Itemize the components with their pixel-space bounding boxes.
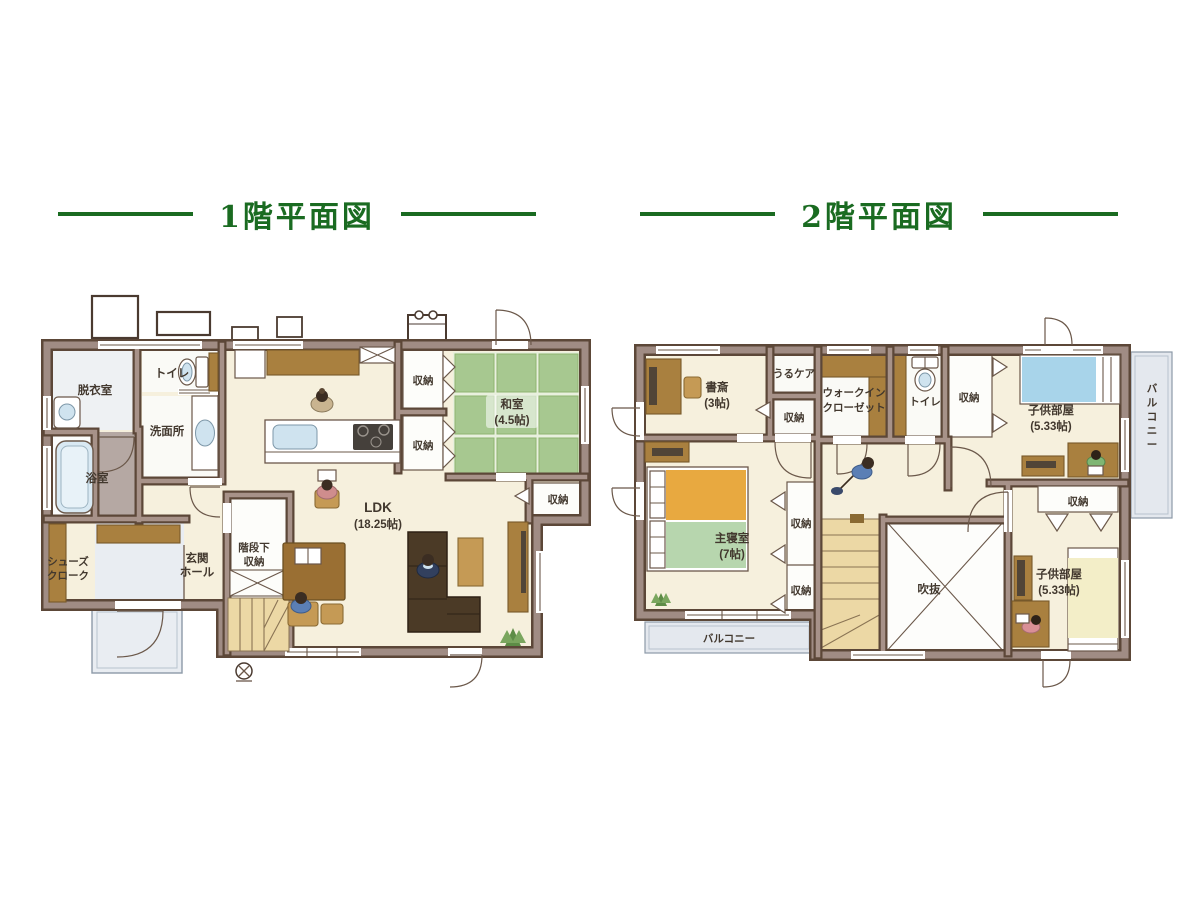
dining-set (283, 543, 345, 626)
label-shuno-2a: 収納 (784, 411, 805, 424)
balcony-bottom: バルコニー (645, 622, 813, 653)
floor1-title: 1階平面図 (219, 192, 375, 236)
label-shoes-1: シューズ (47, 555, 89, 568)
label-balcony-right: バルコニー (1147, 383, 1158, 451)
label-toilet-1f: トイレ (155, 367, 190, 380)
label-master-size: (7帖) (719, 547, 745, 561)
title1-rule-right (401, 212, 536, 216)
label-shuno-2d: 収納 (791, 517, 812, 530)
label-kids2-size: (5.33帖) (1038, 583, 1080, 597)
label-datsui: 脱衣室 (78, 383, 113, 397)
label-urucare: うるケア (773, 368, 815, 380)
label-washitsu-size: (4.5帖) (494, 413, 529, 427)
label-genkan-2: ホール (180, 566, 215, 579)
label-kids2: 子供部屋 (1036, 567, 1082, 581)
kids2-bed (1068, 548, 1118, 651)
label-shosai: 書斎 (706, 380, 729, 394)
stairs-1f (228, 570, 289, 651)
label-shosai-size: (3帖) (704, 396, 730, 410)
label-kaidan-1: 階段下 (238, 541, 270, 554)
label-shuno-c: 収納 (548, 493, 569, 506)
label-shuno-a: 収納 (413, 374, 434, 387)
label-ldk: LDK (364, 500, 392, 515)
kids1-bed (1020, 355, 1120, 404)
label-kids1: 子供部屋 (1028, 403, 1074, 417)
label-wic-2: クローゼット (823, 401, 886, 414)
tv-board-1f (508, 522, 528, 612)
label-kids1-size: (5.33帖) (1030, 419, 1072, 433)
floor2-plan: バルコニー バルコニー (600, 300, 1200, 710)
balcony-right: バルコニー (1131, 352, 1172, 518)
label-wic-1: ウォークイン (823, 387, 886, 399)
title2-rule-right (983, 212, 1118, 216)
floor-plan-canvas: 1階平面図 2階平面図 (0, 0, 1200, 900)
floor2-title: 2階平面図 (801, 192, 957, 236)
label-shoes-2: クローク (47, 570, 89, 582)
vanity-sink-icon (192, 396, 218, 470)
side-table (458, 538, 483, 586)
label-washitsu: 和室 (501, 397, 524, 411)
label-genkan-1: 玄関 (186, 551, 209, 565)
toilet-icon-2f (912, 357, 938, 391)
label-fukinuke: 吹抜 (918, 582, 941, 596)
label-kaidan-2: 収納 (244, 555, 265, 568)
floor1-title-row: 1階平面図 (58, 192, 536, 236)
washing-machine-icon (54, 397, 80, 428)
label-bath: 浴室 (86, 471, 109, 485)
title2-rule-left (640, 212, 775, 216)
label-shuno-2c: 収納 (1068, 495, 1089, 508)
label-shuno-2b: 収納 (959, 391, 980, 404)
label-master: 主寝室 (715, 531, 750, 545)
bay-windows-1f (92, 296, 302, 340)
person-at-counter (315, 470, 339, 508)
tv-board-master (645, 442, 689, 462)
label-shuno-b: 収納 (413, 439, 434, 452)
porch (92, 607, 182, 673)
ac-unit-icon (408, 311, 446, 341)
floor1-plan: 脱衣室 トイレ 洗面所 浴室 シューズ クローク 玄関 ホール 階段下 収納 L… (35, 280, 600, 710)
label-balcony-bottom: バルコニー (703, 633, 755, 645)
label-senmen: 洗面所 (150, 424, 185, 438)
kitchen-sink-icon (273, 425, 317, 449)
outdoor-faucet-icon (236, 663, 252, 681)
floor2-title-row: 2階平面図 (640, 192, 1118, 236)
label-toilet-2f: トイレ (909, 396, 941, 408)
stairs-2f (821, 514, 882, 653)
label-ldk-size: (18.25帖) (354, 517, 402, 531)
kitchen-back-counter (267, 350, 359, 375)
label-shuno-2e: 収納 (791, 584, 812, 597)
fridge-icon (235, 350, 265, 378)
title1-rule-left (58, 212, 193, 216)
